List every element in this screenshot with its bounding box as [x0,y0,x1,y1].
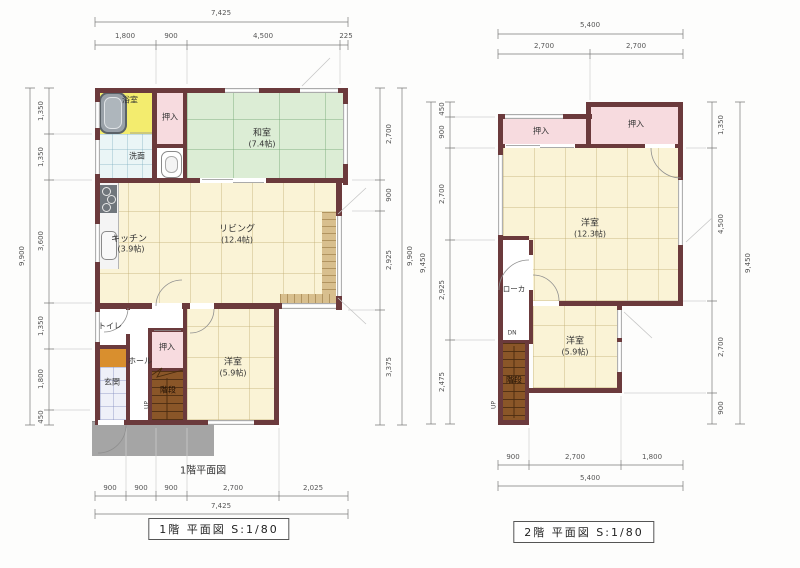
dim-f1-left-4: 1,800 [37,369,45,389]
dim-f1-right-total: 9,900 [406,246,414,266]
f2-label-closet-left: 押入 [533,126,549,137]
dim-f2-bottom-2: 1,800 [642,453,662,461]
dim-f2-left-3: 2,925 [438,280,446,300]
f1-label-washitsu-size: (7.4帖) [249,139,276,150]
f1-label-closet-bottom: 押入 [159,342,175,353]
dim-f1-right-3: 3,375 [385,357,393,377]
dim-f2-left-2: 2,700 [438,184,446,204]
f1-label-bedroom-name: 洋室 [224,355,242,368]
dim-f1-bottom-2: 900 [164,484,177,492]
dim-f2-left-4: 2,475 [438,372,446,392]
f2-label-up: UP [491,401,498,409]
wall-and-dimension-linework [0,0,800,568]
f2-caption: 2階 平面図 S:1/80 [513,521,654,543]
dim-f1-left-1: 1,350 [37,147,45,167]
dim-f1-right-2: 2,925 [385,250,393,270]
f2-label-bedroom-small-size: (5.9帖) [562,347,589,358]
f1-label-genkan: 玄関 [104,377,120,388]
f1-label-toilet: トイレ [98,321,122,332]
f2-label-bedroom-large-name: 洋室 [581,216,599,229]
dim-f2-left-1: 900 [438,125,446,138]
f2-label-bedroom-large-size: (12.3帖) [574,229,606,240]
dim-f2-bottom-total: 5,400 [580,474,600,482]
f1-label-stairs: 階段 [160,385,176,396]
dim-f1-bottom-3: 2,700 [223,484,243,492]
f2-label-corridor: ローカ [503,284,526,295]
f1-label-kitchen-size: (3.9帖) [118,244,145,255]
dim-f2-left-0: 450 [438,102,446,115]
dim-f2-top-total: 5,400 [580,21,600,29]
dim-f2-bottom-1: 2,700 [565,453,585,461]
dim-f1-left-5: 450 [37,410,45,423]
f2-label-closet-right: 押入 [628,119,644,130]
f2-label-stairs: 階段 [506,375,522,386]
dim-f1-right-1: 900 [385,188,393,201]
f1-label-living-size: (12.4帖) [221,235,253,246]
dim-f1-bottom-4: 2,025 [303,484,323,492]
dim-f1-top-1: 900 [164,32,177,40]
dim-f2-right-1: 4,500 [717,214,725,234]
dim-f1-bottom-0: 900 [103,484,116,492]
f2-label-dn: DN [507,330,516,337]
f1-label-up: UP [144,401,151,409]
dim-f2-right-total: 9,450 [744,253,752,273]
f1-caption: 1階 平面図 S:1/80 [148,518,289,540]
f1-label-bedroom-size: (5.9帖) [220,368,247,379]
dim-f2-right-3: 900 [717,401,725,414]
f1-label-living-name: リビング [219,222,255,235]
f2-label-bedroom-small-name: 洋室 [566,334,584,347]
dim-f2-left-total: 9,450 [419,253,427,273]
dim-f1-left-2: 3,600 [37,231,45,251]
f1-label-washitsu-name: 和室 [253,126,271,139]
dim-f2-right-0: 1,350 [717,115,725,135]
f1-label-hall: ホール [128,356,152,367]
dim-f1-top-total: 7,425 [211,9,231,17]
dim-f2-top-0: 2,700 [534,42,554,50]
dim-f1-bottom-1: 900 [134,484,147,492]
f1-label-bath: 浴室 [122,95,138,106]
dim-f1-top-3: 225 [339,32,352,40]
dim-f1-left-total: 9,900 [18,246,26,266]
dim-f2-top-1: 2,700 [626,42,646,50]
f1-label-washroom: 洗面 [129,151,145,162]
dim-f1-top-2: 4,500 [253,32,273,40]
dim-f1-left-0: 1,350 [37,101,45,121]
f1-label-closet-top: 押入 [162,112,178,123]
dim-f1-left-3: 1,350 [37,316,45,336]
dim-f2-right-2: 2,700 [717,337,725,357]
dim-f1-bottom-total: 7,425 [211,502,231,510]
dim-f1-right-0: 2,700 [385,124,393,144]
dim-f2-bottom-0: 900 [506,453,519,461]
f1-plan-label: 1階平面図 [180,462,226,477]
dim-f1-top-0: 1,800 [115,32,135,40]
floor-plan-sheet: 浴室 洗面 押入 和室 (7.4帖) キッチン (3.9帖) リビング (12.… [0,0,800,568]
